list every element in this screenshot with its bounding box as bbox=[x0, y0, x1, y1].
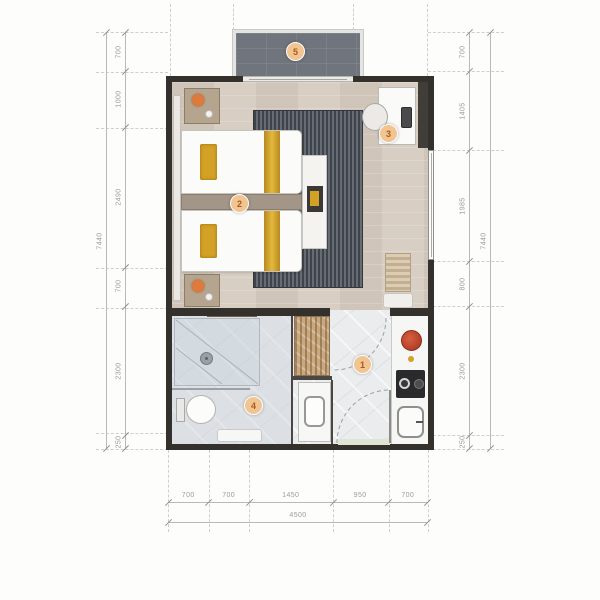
guide-line bbox=[233, 4, 234, 30]
vase-decor bbox=[205, 293, 213, 301]
dimension-segment: 4500 bbox=[168, 522, 428, 536]
dimension-segment: 2300 bbox=[456, 306, 470, 435]
dimension-right-segments: 700140519858002300250 bbox=[456, 32, 470, 449]
dimension-label: 950 bbox=[354, 492, 367, 499]
dimension-label: 250 bbox=[116, 436, 123, 449]
dimension-label: 4500 bbox=[289, 512, 306, 519]
dimension-segment: 700 bbox=[456, 32, 470, 71]
shower-enclosure bbox=[174, 318, 260, 386]
dimension-segment: 7440 bbox=[477, 32, 491, 449]
dimension-label: 700 bbox=[460, 45, 467, 58]
dimension-segment: 700 bbox=[112, 267, 126, 306]
guide-line bbox=[353, 4, 354, 30]
guide-line bbox=[96, 449, 168, 450]
dimension-label: 1405 bbox=[460, 102, 467, 119]
dimension-segment: 700 bbox=[112, 32, 126, 71]
dimension-label: 700 bbox=[116, 280, 123, 293]
vanity bbox=[298, 382, 331, 442]
burner-icon bbox=[399, 378, 410, 389]
dimension-segment: 700 bbox=[168, 502, 208, 516]
tv-screen bbox=[310, 191, 319, 206]
shower-tray bbox=[217, 429, 262, 442]
marker-beds: 2 bbox=[230, 194, 249, 213]
dimension-label: 700 bbox=[182, 492, 195, 499]
dimension-label: 2300 bbox=[460, 362, 467, 379]
luggage-rack bbox=[385, 253, 411, 292]
dimension-segment: 1985 bbox=[456, 150, 470, 261]
guide-line bbox=[389, 450, 390, 532]
dimension-label: 7440 bbox=[481, 232, 488, 249]
flower-decor bbox=[192, 280, 204, 292]
ottoman bbox=[383, 293, 413, 308]
dimension-segment: 700 bbox=[388, 502, 428, 516]
dimension-label: 1450 bbox=[282, 492, 299, 499]
tv bbox=[307, 186, 323, 212]
dimension-label: 2490 bbox=[116, 188, 123, 205]
tv-console bbox=[302, 155, 327, 249]
kitchen-sink bbox=[397, 406, 424, 438]
dimension-segment: 700 bbox=[208, 502, 248, 516]
marker-entry: 1 bbox=[353, 355, 372, 374]
dimension-left-total: 7440 bbox=[93, 32, 107, 449]
dimension-segment: 250 bbox=[456, 435, 470, 449]
vanity-wall bbox=[331, 380, 333, 444]
laptop bbox=[401, 107, 412, 128]
floor-plan: 7440 700100024907002300250 7001405198580… bbox=[0, 0, 600, 600]
marker-desk: 3 bbox=[379, 124, 398, 143]
dimension-label: 250 bbox=[460, 436, 467, 449]
counter-knob bbox=[408, 356, 414, 362]
window bbox=[428, 150, 434, 260]
marker-label: 4 bbox=[251, 401, 256, 411]
balcony-sliding-door bbox=[243, 76, 353, 82]
dimension-segment: 7440 bbox=[93, 32, 107, 449]
dimension-right-total: 7440 bbox=[477, 32, 491, 449]
dimension-left-segments: 700100024907002300250 bbox=[112, 32, 126, 449]
dimension-label: 700 bbox=[116, 45, 123, 58]
marker-label: 5 bbox=[293, 47, 298, 57]
dimension-segment: 250 bbox=[112, 435, 126, 449]
bed-2 bbox=[181, 210, 302, 272]
marker-label: 3 bbox=[386, 129, 391, 139]
bedroom-floor bbox=[172, 82, 428, 310]
dimension-label: 700 bbox=[401, 492, 414, 499]
vase-decor bbox=[205, 110, 213, 118]
dimension-label: 2300 bbox=[116, 362, 123, 379]
induction-cooker bbox=[401, 330, 422, 351]
pillow-gold bbox=[200, 144, 217, 180]
interior-wall bbox=[390, 308, 428, 316]
bed-runner-gold bbox=[264, 211, 280, 271]
guide-line bbox=[209, 450, 210, 532]
side-table-top bbox=[184, 88, 220, 124]
burner-icon bbox=[414, 379, 424, 389]
dimension-segment: 1000 bbox=[112, 71, 126, 127]
side-table-bottom bbox=[184, 274, 220, 307]
marker-balcony: 5 bbox=[286, 42, 305, 61]
stove bbox=[396, 370, 425, 398]
pillow-gold bbox=[200, 224, 217, 258]
kitchenette-counter bbox=[391, 314, 428, 444]
dimension-label: 700 bbox=[222, 492, 235, 499]
dimension-label: 1000 bbox=[116, 91, 123, 108]
shower-drain bbox=[200, 352, 213, 365]
bathroom-partition bbox=[172, 388, 250, 390]
guide-line bbox=[333, 450, 334, 532]
entry-threshold bbox=[338, 439, 390, 445]
guide-line bbox=[249, 450, 250, 532]
bed-runner-gold bbox=[264, 131, 280, 193]
wardrobe-wall bbox=[292, 376, 332, 380]
wall-cabinet bbox=[418, 82, 428, 148]
bed-1 bbox=[181, 130, 302, 194]
dimension-bottom-total: 4500 bbox=[168, 522, 428, 536]
marker-label: 1 bbox=[360, 360, 365, 370]
marker-label: 2 bbox=[237, 199, 242, 209]
guide-line bbox=[170, 4, 171, 76]
wardrobe bbox=[294, 316, 330, 376]
faucet-icon bbox=[416, 421, 423, 423]
lower-floor bbox=[172, 310, 428, 444]
headboard-panel bbox=[173, 95, 181, 301]
dimension-segment: 2490 bbox=[112, 127, 126, 267]
dimension-label: 800 bbox=[460, 277, 467, 290]
dimension-label: 1985 bbox=[460, 197, 467, 214]
dimension-segment: 950 bbox=[333, 502, 388, 516]
toilet bbox=[186, 395, 216, 424]
dimension-label: 7440 bbox=[97, 232, 104, 249]
interior-wall bbox=[172, 308, 330, 316]
flower-decor bbox=[192, 94, 204, 106]
wash-basin bbox=[304, 396, 325, 427]
dimension-segment: 2300 bbox=[112, 306, 126, 435]
dimension-segment: 1405 bbox=[456, 71, 470, 150]
toilet-tank bbox=[176, 398, 185, 422]
dimension-segment: 800 bbox=[456, 261, 470, 306]
marker-bathroom: 4 bbox=[244, 396, 263, 415]
guide-line bbox=[427, 4, 428, 76]
